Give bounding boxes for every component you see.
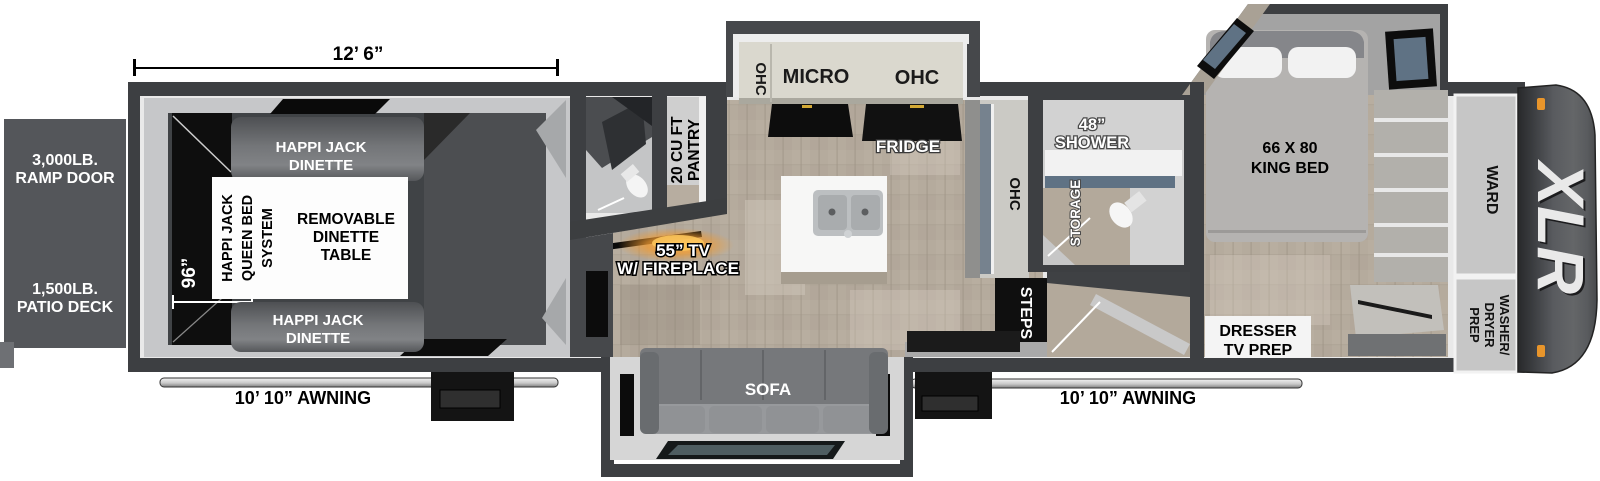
svg-text:TV PREP: TV PREP (1224, 342, 1293, 359)
svg-text:PATIO DECK: PATIO DECK (17, 299, 114, 316)
svg-text:SYSTEM: SYSTEM (260, 208, 276, 268)
svg-text:OHC: OHC (752, 62, 769, 96)
svg-text:FRIDGE: FRIDGE (876, 137, 940, 156)
svg-text:RAMP DOOR: RAMP DOOR (15, 170, 115, 187)
svg-text:SOFA: SOFA (745, 380, 791, 399)
svg-text:DRYER: DRYER (1482, 302, 1497, 348)
svg-text:OHC: OHC (1006, 177, 1023, 211)
svg-text:DINETTE: DINETTE (286, 330, 350, 347)
svg-text:20 CU FT: 20 CU FT (669, 116, 686, 184)
svg-text:HAPPI JACK: HAPPI JACK (220, 194, 236, 282)
svg-text:XLR: XLR (1524, 158, 1598, 294)
svg-text:TABLE: TABLE (321, 247, 372, 264)
svg-text:WARD: WARD (1483, 166, 1500, 215)
svg-text:REMOVABLE: REMOVABLE (297, 211, 395, 228)
svg-text:55” TV: 55” TV (656, 241, 711, 260)
svg-text:W/ FIREPLACE: W/ FIREPLACE (617, 259, 739, 278)
svg-text:PREP: PREP (1467, 307, 1482, 343)
svg-text:3,000LB.: 3,000LB. (32, 152, 98, 169)
svg-text:KING BED: KING BED (1251, 160, 1329, 177)
svg-text:HAPPI JACK: HAPPI JACK (276, 139, 367, 156)
svg-text:1,500LB.: 1,500LB. (32, 281, 98, 298)
svg-text:96”: 96” (179, 258, 200, 289)
svg-text:DRESSER: DRESSER (1219, 323, 1297, 340)
svg-text:SHOWER: SHOWER (1055, 134, 1129, 152)
svg-text:10’ 10” AWNING: 10’ 10” AWNING (1060, 388, 1196, 408)
svg-text:DINETTE: DINETTE (289, 157, 353, 174)
svg-text:PANTRY: PANTRY (686, 118, 703, 181)
svg-text:HAPPI JACK: HAPPI JACK (273, 312, 364, 329)
svg-text:48”: 48” (1079, 116, 1106, 134)
svg-text:STORAGE: STORAGE (1068, 180, 1083, 247)
svg-text:66 X 80: 66 X 80 (1262, 140, 1317, 157)
svg-text:10’ 10” AWNING: 10’ 10” AWNING (235, 388, 371, 408)
svg-text:WASHER/: WASHER/ (1497, 295, 1512, 356)
svg-text:DINETTE: DINETTE (313, 229, 379, 246)
svg-text:QUEEN BED: QUEEN BED (240, 195, 256, 281)
svg-text:MICRO: MICRO (783, 66, 850, 88)
svg-text:12’ 6”: 12’ 6” (333, 44, 384, 65)
svg-text:OHC: OHC (895, 67, 939, 89)
